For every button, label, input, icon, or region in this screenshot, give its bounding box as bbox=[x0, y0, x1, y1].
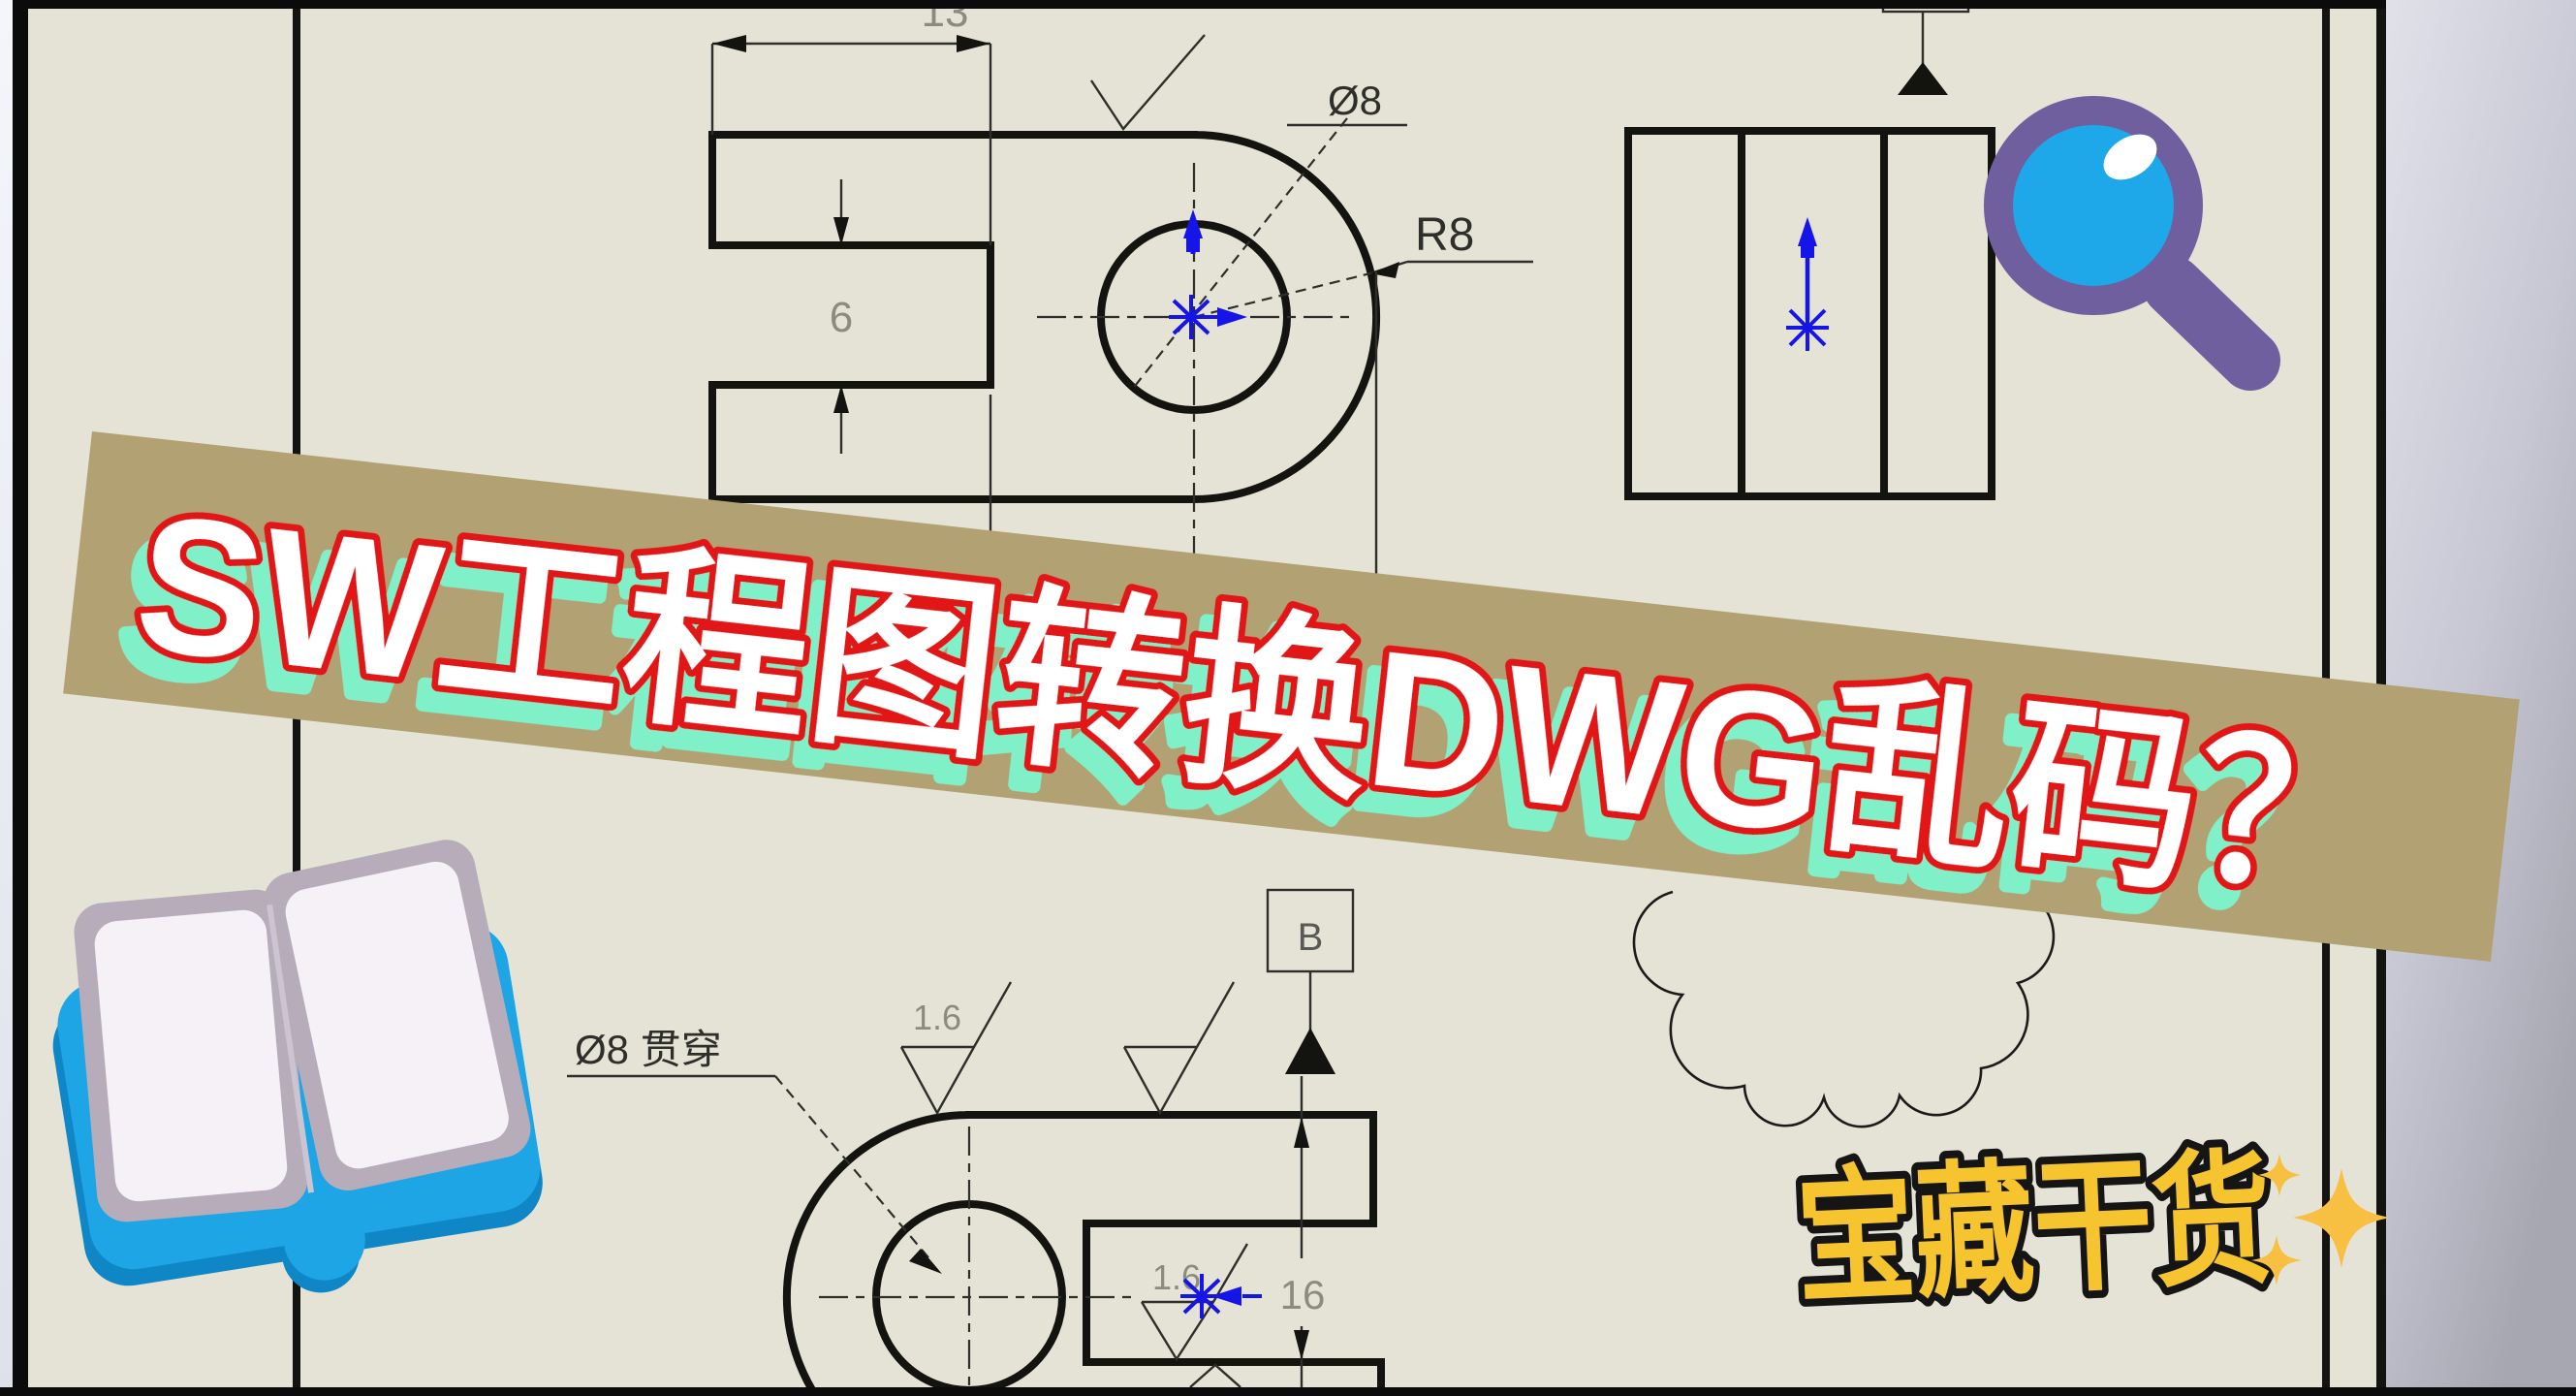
border-line-left bbox=[13, 0, 28, 1396]
dim-depth-label: 16 bbox=[1280, 1272, 1326, 1317]
treasure-badge: 宝藏干货 bbox=[1793, 1137, 2275, 1320]
badge-text: 宝藏干货 bbox=[1793, 1137, 2275, 1320]
border-bar-bottom bbox=[0, 1387, 2576, 1396]
radius-label: R8 bbox=[1415, 209, 1474, 261]
magnifier-lens bbox=[1998, 111, 2188, 301]
finish-slot-label: 1.6 bbox=[1152, 1257, 1201, 1297]
through-hole-label: Ø8 贯穿 bbox=[575, 1027, 722, 1072]
datum-b-label: B bbox=[1298, 916, 1324, 959]
page-edge-left bbox=[0, 0, 13, 1396]
finish-top-label: 1.6 bbox=[913, 998, 961, 1037]
video-thumbnail: 13 6 Ø8 R8 bbox=[0, 0, 2576, 1396]
dim-slot-label: 6 bbox=[830, 294, 853, 341]
hole-label: Ø8 bbox=[1328, 78, 1382, 123]
scene: 13 6 Ø8 R8 bbox=[0, 0, 2576, 1396]
border-bar-top bbox=[13, 0, 2386, 9]
